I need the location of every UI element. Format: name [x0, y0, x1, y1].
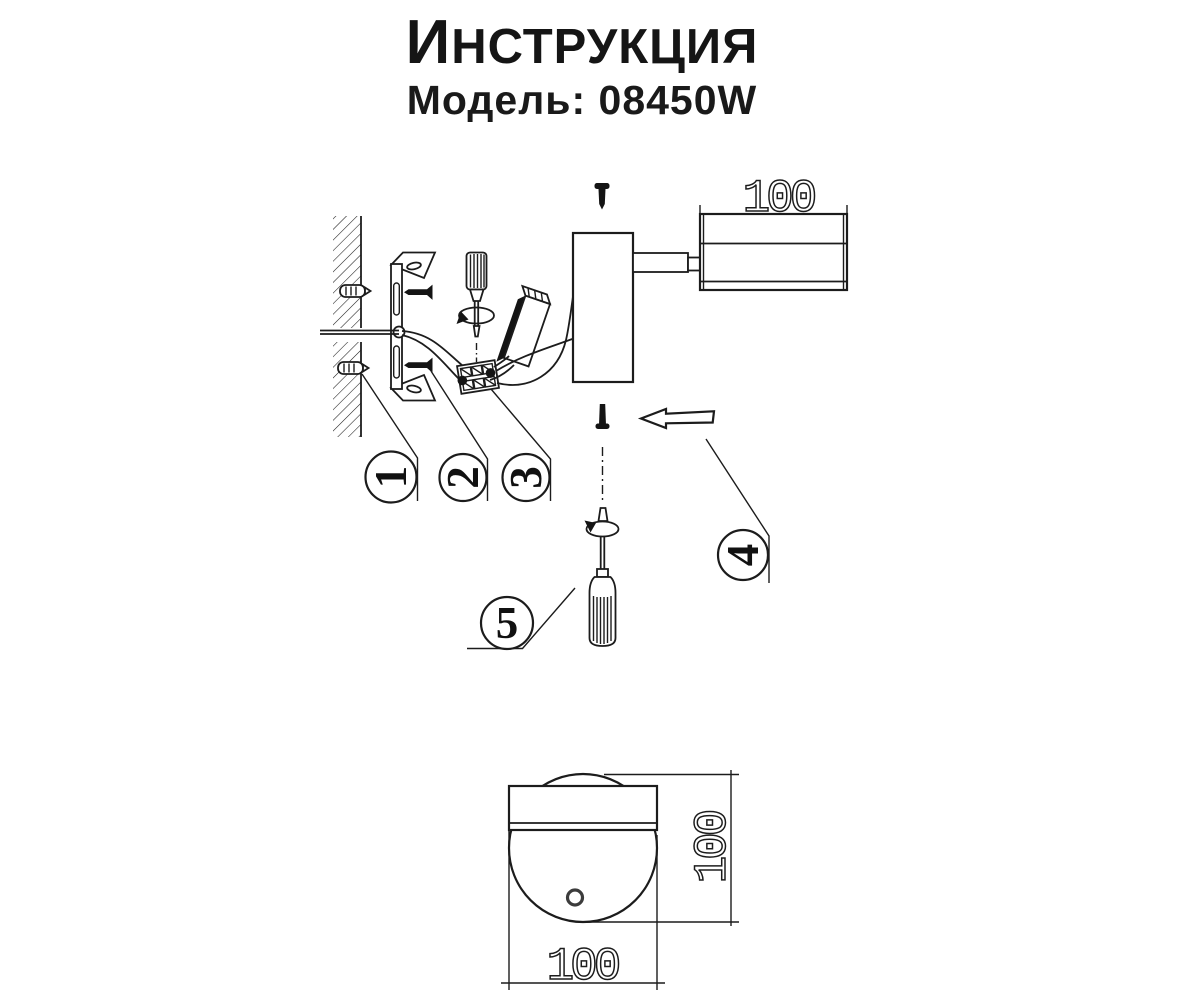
- dimension-label-head-length: 100: [743, 173, 815, 225]
- lamp-arm: [633, 253, 688, 272]
- callout-3-number: 3: [501, 466, 551, 489]
- wall-anchor-bottom: [338, 362, 369, 374]
- callout-5: 5: [481, 597, 533, 649]
- terminal-block: [455, 360, 499, 394]
- instruction-sheet: ИНСТРУКЦИЯ Модель: 08450W: [0, 0, 1200, 1000]
- dimension-label-front-width: 100: [547, 941, 619, 993]
- callout-2-number: 2: [438, 466, 488, 489]
- callout-3: 3: [501, 454, 551, 501]
- callout-1-number: 1: [366, 466, 416, 489]
- callout-2: 2: [438, 454, 488, 501]
- direction-arrow-icon: [641, 409, 714, 428]
- width-dimension: 100: [501, 830, 665, 993]
- lamp-arm-joint: [688, 258, 700, 271]
- callout-5-number: 5: [496, 598, 519, 648]
- callout-4: 4: [718, 530, 768, 580]
- lamp-mount-plate: [573, 233, 633, 382]
- screwdriver-upper: [457, 253, 495, 363]
- mounting-bracket: [391, 253, 435, 401]
- callout-1: 1: [366, 452, 417, 503]
- lamp-body: 100: [573, 173, 847, 382]
- dimension-label-front-height: 100: [687, 811, 739, 883]
- lamp-screw-bottom: [596, 404, 610, 429]
- lamp-screw-top: [595, 183, 610, 210]
- callout-4-number: 4: [718, 544, 768, 567]
- bracket-screw-top: [404, 285, 433, 300]
- assembly-diagram: 100: [0, 0, 1200, 1000]
- wall-section: [333, 216, 361, 437]
- bracket-screw-bottom: [404, 358, 433, 373]
- front-view: 100 100: [501, 770, 739, 993]
- screwdriver-lower: [585, 508, 619, 646]
- wall-anchor-top: [340, 285, 371, 297]
- rotation-arrow-icon: [585, 521, 619, 537]
- switch-dot: [568, 890, 583, 905]
- lamp-head: [700, 214, 847, 290]
